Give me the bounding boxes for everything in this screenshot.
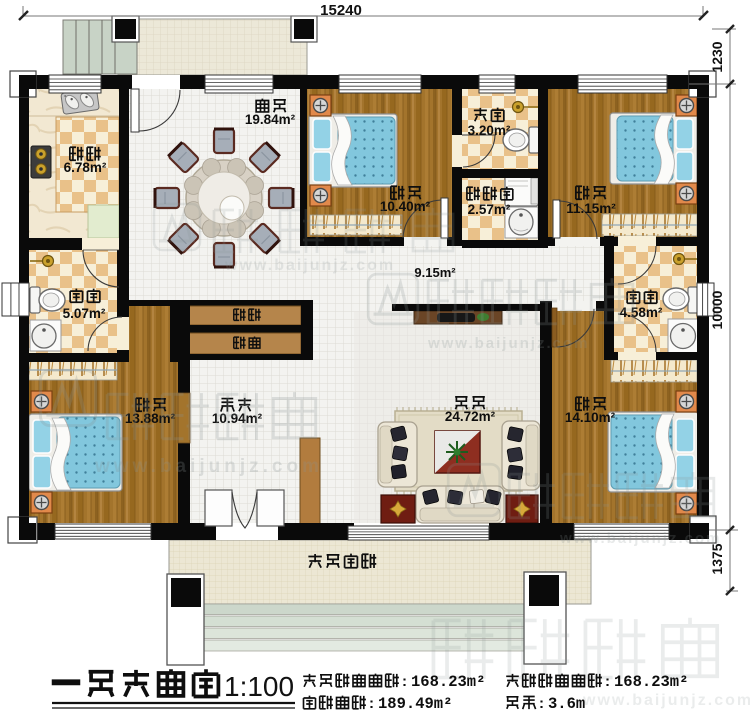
svg-text:1230: 1230: [709, 41, 725, 72]
svg-text:14.10m²: 14.10m²: [565, 410, 616, 425]
svg-text::: :: [605, 673, 610, 690]
svg-text:www.baijunjz.com: www.baijunjz.com: [94, 456, 323, 477]
svg-text:5.07m²: 5.07m²: [63, 306, 106, 321]
svg-text:2.57m²: 2.57m²: [468, 202, 511, 217]
svg-text:19.84m²: 19.84m²: [245, 112, 296, 127]
svg-text::: :: [539, 695, 544, 712]
svg-text:10.40m²: 10.40m²: [380, 199, 431, 214]
svg-text:13.88m²: 13.88m²: [125, 411, 176, 426]
svg-text:www.baijunjz.com: www.baijunjz.com: [559, 530, 721, 547]
svg-text:168.23m²: 168.23m²: [411, 673, 485, 691]
svg-text:www.baijunjz.com: www.baijunjz.com: [582, 692, 750, 709]
svg-text::: :: [369, 695, 374, 712]
svg-text:6.78m²: 6.78m²: [64, 160, 107, 175]
svg-text::: :: [402, 673, 407, 690]
svg-text:3.6m: 3.6m: [548, 695, 585, 713]
svg-text:189.49m²: 189.49m²: [378, 695, 452, 713]
svg-text:168.23m²: 168.23m²: [614, 673, 688, 691]
svg-text:15240: 15240: [320, 2, 362, 19]
svg-text:9.15m²: 9.15m²: [414, 265, 456, 280]
svg-text:3.20m²: 3.20m²: [468, 123, 511, 138]
svg-text:1:100: 1:100: [224, 671, 294, 702]
svg-text:www.baijunjz.com: www.baijunjz.com: [224, 257, 395, 274]
svg-text:11.15m²: 11.15m²: [566, 201, 616, 216]
svg-text:www.baijunjz.com: www.baijunjz.com: [427, 335, 589, 352]
svg-text:24.72m²: 24.72m²: [445, 409, 496, 424]
svg-text:10000: 10000: [709, 290, 725, 329]
svg-text:1375: 1375: [709, 543, 725, 574]
svg-text:4.58m²: 4.58m²: [620, 305, 663, 320]
